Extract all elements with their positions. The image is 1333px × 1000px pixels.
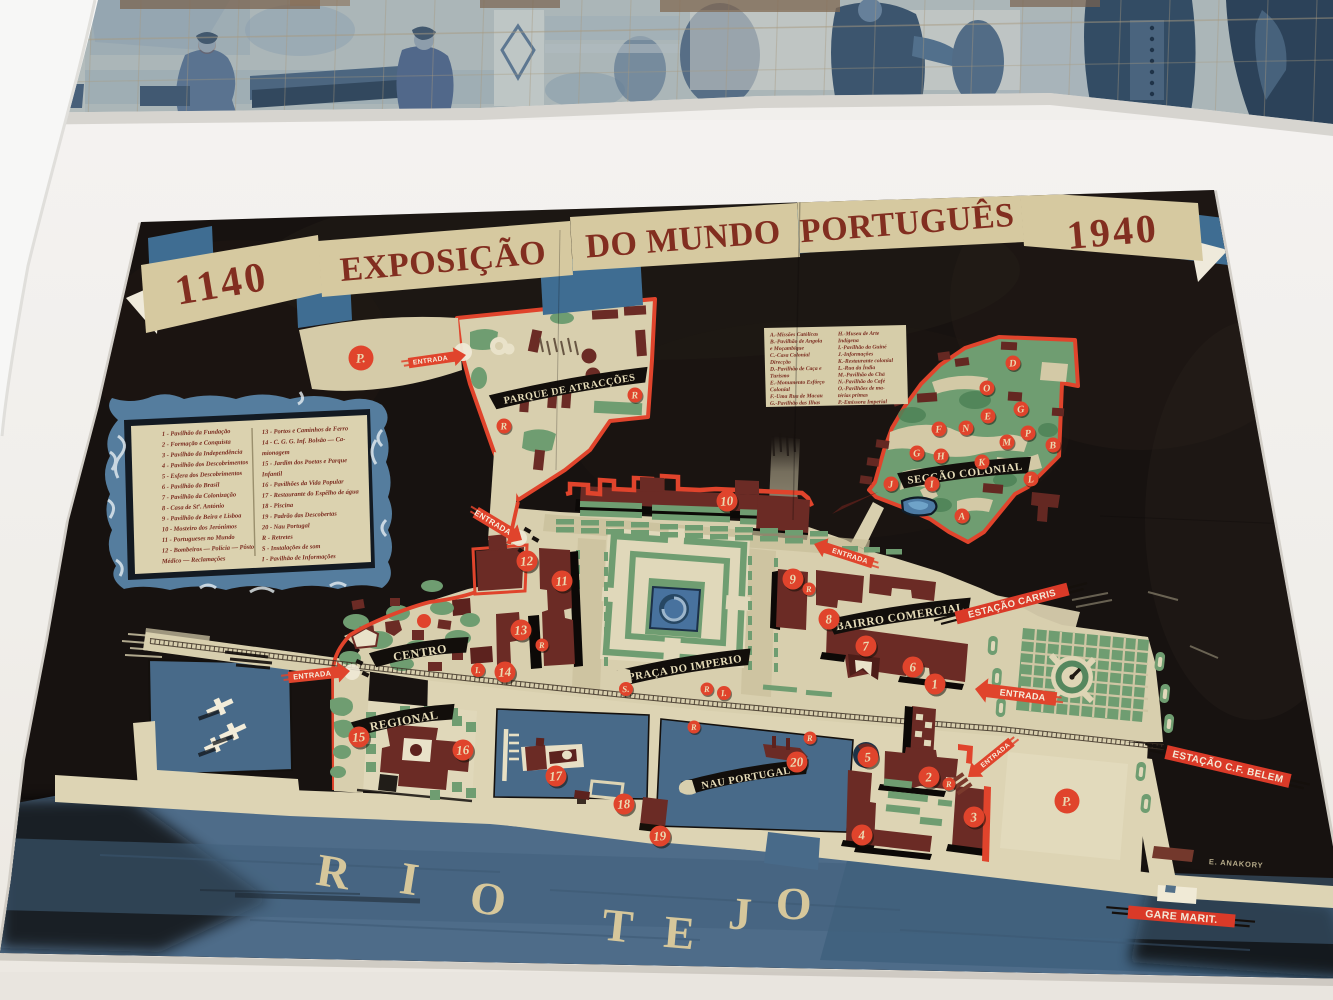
svg-text:16: 16	[456, 742, 471, 758]
svg-text:Turismo: Turismo	[770, 373, 790, 379]
svg-text:R: R	[806, 733, 814, 743]
svg-text:e Moçambique: e Moçambique	[770, 346, 805, 353]
svg-text:J.-Informações: J.-Informações	[837, 351, 873, 358]
svg-text:18 - Piscina: 18 - Piscina	[262, 502, 294, 510]
svg-text:O.-Pavilhões de ma-: O.-Pavilhões de ma-	[838, 385, 885, 392]
svg-text:R - Retretes: R - Retretes	[261, 534, 294, 542]
svg-text:S.: S.	[622, 684, 630, 694]
svg-text:M.-Pavilhão do Chá: M.-Pavilhão do Chá	[837, 372, 885, 379]
svg-text:D: D	[1008, 358, 1017, 370]
svg-text:R: R	[805, 584, 813, 594]
svg-text:N: N	[961, 423, 971, 435]
svg-text:10: 10	[720, 493, 735, 509]
svg-text:E: E	[983, 411, 992, 423]
svg-text:17: 17	[549, 768, 564, 784]
svg-text:R: R	[499, 421, 508, 433]
svg-text:I.: I.	[720, 688, 727, 698]
svg-text:15: 15	[352, 729, 367, 745]
svg-text:T: T	[600, 899, 636, 953]
svg-text:térias primas: térias primas	[838, 393, 868, 400]
svg-text:E: E	[662, 906, 697, 959]
svg-text:N.-Pavilhão do Café: N.-Pavilhão do Café	[837, 379, 886, 386]
svg-text:P.: P.	[355, 350, 366, 366]
svg-text:M: M	[1001, 437, 1013, 449]
svg-text:13: 13	[514, 622, 529, 638]
svg-text:H.-Museu de Arte: H.-Museu de Arte	[837, 331, 880, 338]
svg-text:R: R	[630, 390, 639, 402]
svg-text:A.-Missões Católicas: A.-Missões Católicas	[769, 332, 818, 339]
svg-text:Direcção: Direcção	[769, 360, 791, 366]
svg-text:Colonial: Colonial	[770, 387, 790, 393]
svg-text:A: A	[957, 511, 966, 523]
svg-text:14: 14	[498, 664, 513, 680]
svg-text:J: J	[727, 887, 754, 939]
svg-text:R: R	[945, 779, 953, 789]
svg-text:L: L	[1026, 474, 1034, 485]
svg-text:R: R	[538, 640, 546, 650]
svg-text:F: F	[934, 424, 943, 436]
svg-text:20: 20	[789, 754, 805, 770]
svg-text:mionagem: mionagem	[262, 449, 290, 457]
svg-text:19: 19	[653, 828, 668, 844]
svg-text:1: 1	[931, 676, 939, 691]
svg-text:18: 18	[617, 796, 632, 812]
svg-text:I.-Pavilhão da Guiné: I.-Pavilhão da Guiné	[837, 344, 887, 351]
svg-text:11: 11	[555, 573, 568, 589]
svg-text:P.-Emissora Imperial: P.-Emissora Imperial	[838, 399, 888, 406]
svg-text:Indígena: Indígena	[837, 338, 859, 344]
svg-text:R: R	[690, 722, 698, 732]
svg-text:O: O	[775, 877, 813, 930]
svg-text:1940: 1940	[1065, 205, 1161, 258]
svg-text:Infantil: Infantil	[261, 471, 283, 479]
svg-text:P.: P.	[1061, 793, 1072, 809]
svg-text:C.-Casa Colonial: C.-Casa Colonial	[770, 352, 810, 359]
svg-text:R: R	[703, 684, 711, 694]
svg-text:O: O	[467, 871, 510, 926]
svg-text:K.-Restaurante colonial: K.-Restaurante colonial	[837, 358, 894, 365]
svg-text:12: 12	[520, 553, 535, 569]
svg-text:E.-Monumento Esfôrço: E.-Monumento Esfôrço	[769, 379, 825, 386]
svg-text:O: O	[983, 383, 991, 394]
svg-text:B: B	[1048, 440, 1057, 452]
svg-text:B.-Pavilhão de Angola: B.-Pavilhão de Angola	[769, 338, 822, 345]
svg-text:I.: I.	[474, 665, 481, 675]
